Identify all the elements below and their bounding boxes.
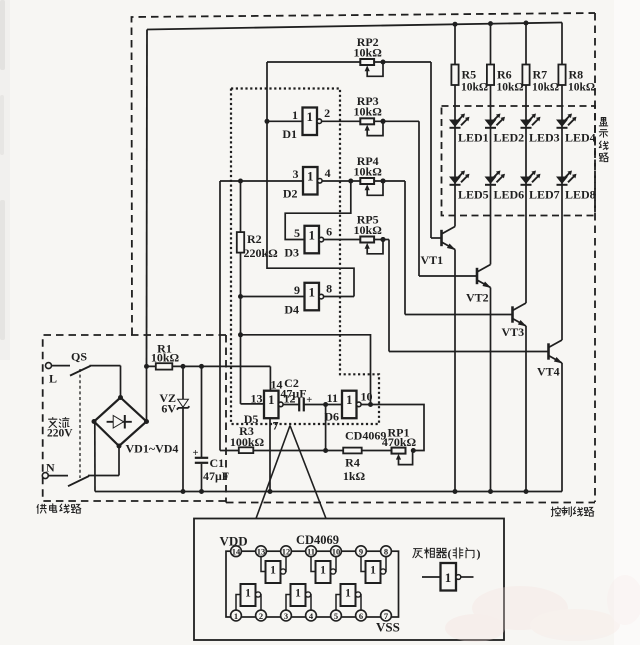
svg-text:1: 1 bbox=[309, 227, 316, 242]
svg-text:N: N bbox=[46, 461, 55, 475]
svg-text:1: 1 bbox=[309, 284, 316, 299]
svg-text:LED2: LED2 bbox=[494, 131, 525, 145]
svg-text:LED7: LED7 bbox=[529, 188, 560, 202]
svg-text:5: 5 bbox=[294, 226, 300, 240]
svg-text:+: + bbox=[306, 395, 312, 406]
svg-text:VT4: VT4 bbox=[537, 365, 560, 379]
svg-text:10kΩ: 10kΩ bbox=[568, 82, 595, 94]
svg-text:10: 10 bbox=[332, 547, 341, 557]
svg-text:R2: R2 bbox=[247, 232, 262, 246]
svg-text:LED1: LED1 bbox=[458, 131, 489, 145]
svg-text:6V: 6V bbox=[161, 402, 176, 416]
svg-text:220V: 220V bbox=[47, 428, 73, 440]
svg-text:8: 8 bbox=[384, 547, 388, 557]
svg-text:470kΩ: 470kΩ bbox=[382, 435, 417, 449]
svg-text:C1: C1 bbox=[210, 456, 225, 470]
svg-text:11: 11 bbox=[307, 547, 315, 557]
svg-text:10kΩ: 10kΩ bbox=[497, 82, 524, 94]
svg-text:10kΩ: 10kΩ bbox=[354, 223, 383, 237]
svg-text:1: 1 bbox=[270, 565, 276, 577]
svg-text:1: 1 bbox=[345, 588, 351, 600]
svg-text:1kΩ: 1kΩ bbox=[343, 469, 366, 483]
svg-text:10kΩ: 10kΩ bbox=[461, 82, 488, 94]
svg-text:D1: D1 bbox=[282, 127, 297, 141]
svg-text:VT1: VT1 bbox=[421, 253, 444, 267]
svg-text:100kΩ: 100kΩ bbox=[230, 435, 265, 449]
svg-text:VT3: VT3 bbox=[502, 325, 525, 339]
svg-text:10kΩ: 10kΩ bbox=[354, 105, 383, 119]
svg-text:10kΩ: 10kΩ bbox=[151, 350, 180, 364]
svg-text:1: 1 bbox=[307, 109, 314, 124]
svg-text:7: 7 bbox=[273, 418, 279, 432]
svg-text:9: 9 bbox=[294, 283, 300, 297]
svg-text:8: 8 bbox=[326, 282, 332, 296]
svg-text:1: 1 bbox=[292, 108, 298, 122]
svg-text:47μF: 47μF bbox=[280, 387, 306, 401]
svg-text:47μF: 47μF bbox=[203, 469, 229, 483]
svg-text:D3: D3 bbox=[284, 245, 299, 259]
svg-text:4: 4 bbox=[325, 166, 331, 180]
svg-text:R6: R6 bbox=[497, 68, 512, 82]
svg-text:1: 1 bbox=[346, 392, 353, 407]
svg-text:(: ( bbox=[448, 547, 452, 561]
svg-text:12: 12 bbox=[282, 547, 291, 557]
svg-text:1: 1 bbox=[307, 169, 314, 184]
svg-text:D2: D2 bbox=[283, 187, 298, 201]
svg-text:10kΩ: 10kΩ bbox=[354, 45, 383, 59]
svg-text:CD4069: CD4069 bbox=[296, 533, 339, 547]
svg-text:VDD: VDD bbox=[220, 533, 248, 548]
svg-text:3: 3 bbox=[293, 167, 299, 181]
svg-text:D6: D6 bbox=[324, 410, 339, 424]
svg-text:1: 1 bbox=[295, 588, 301, 600]
svg-text:6: 6 bbox=[359, 611, 363, 621]
svg-text:LED3: LED3 bbox=[529, 131, 560, 145]
svg-text:1: 1 bbox=[320, 565, 326, 577]
svg-text:QS: QS bbox=[71, 350, 87, 364]
svg-text:R8: R8 bbox=[569, 68, 584, 82]
svg-text:LED6: LED6 bbox=[494, 188, 525, 202]
svg-text:9: 9 bbox=[359, 547, 363, 557]
svg-text:1: 1 bbox=[268, 392, 275, 407]
svg-text:CD4069: CD4069 bbox=[345, 429, 386, 443]
svg-text:R5: R5 bbox=[462, 68, 477, 82]
svg-text:LED8: LED8 bbox=[565, 188, 596, 202]
svg-text:220kΩ: 220kΩ bbox=[244, 246, 279, 260]
svg-text:13: 13 bbox=[257, 547, 266, 557]
svg-text:6: 6 bbox=[326, 225, 332, 239]
svg-text:R4: R4 bbox=[345, 456, 360, 470]
svg-text:L: L bbox=[49, 372, 57, 386]
svg-text:1: 1 bbox=[245, 588, 251, 600]
svg-text:LED5: LED5 bbox=[458, 188, 489, 202]
svg-text:5: 5 bbox=[334, 611, 338, 621]
svg-text:D4: D4 bbox=[284, 302, 299, 316]
svg-text:11: 11 bbox=[327, 391, 338, 405]
svg-text:+: + bbox=[193, 448, 199, 459]
svg-text:10kΩ: 10kΩ bbox=[354, 164, 383, 178]
svg-text:2: 2 bbox=[324, 106, 330, 120]
svg-text:VT2: VT2 bbox=[466, 291, 489, 305]
svg-text:VSS: VSS bbox=[376, 620, 400, 635]
svg-text:LED4: LED4 bbox=[565, 131, 596, 145]
svg-text:): ) bbox=[477, 547, 481, 561]
svg-text:1: 1 bbox=[370, 565, 376, 577]
svg-text:1: 1 bbox=[234, 611, 238, 621]
svg-text:R7: R7 bbox=[533, 68, 548, 82]
svg-text:10: 10 bbox=[361, 390, 373, 404]
svg-text:1: 1 bbox=[445, 570, 452, 585]
svg-text:VD1~VD4: VD1~VD4 bbox=[126, 442, 179, 456]
svg-text:3: 3 bbox=[284, 611, 288, 621]
svg-text:2: 2 bbox=[259, 611, 263, 621]
svg-text:10kΩ: 10kΩ bbox=[532, 82, 559, 94]
